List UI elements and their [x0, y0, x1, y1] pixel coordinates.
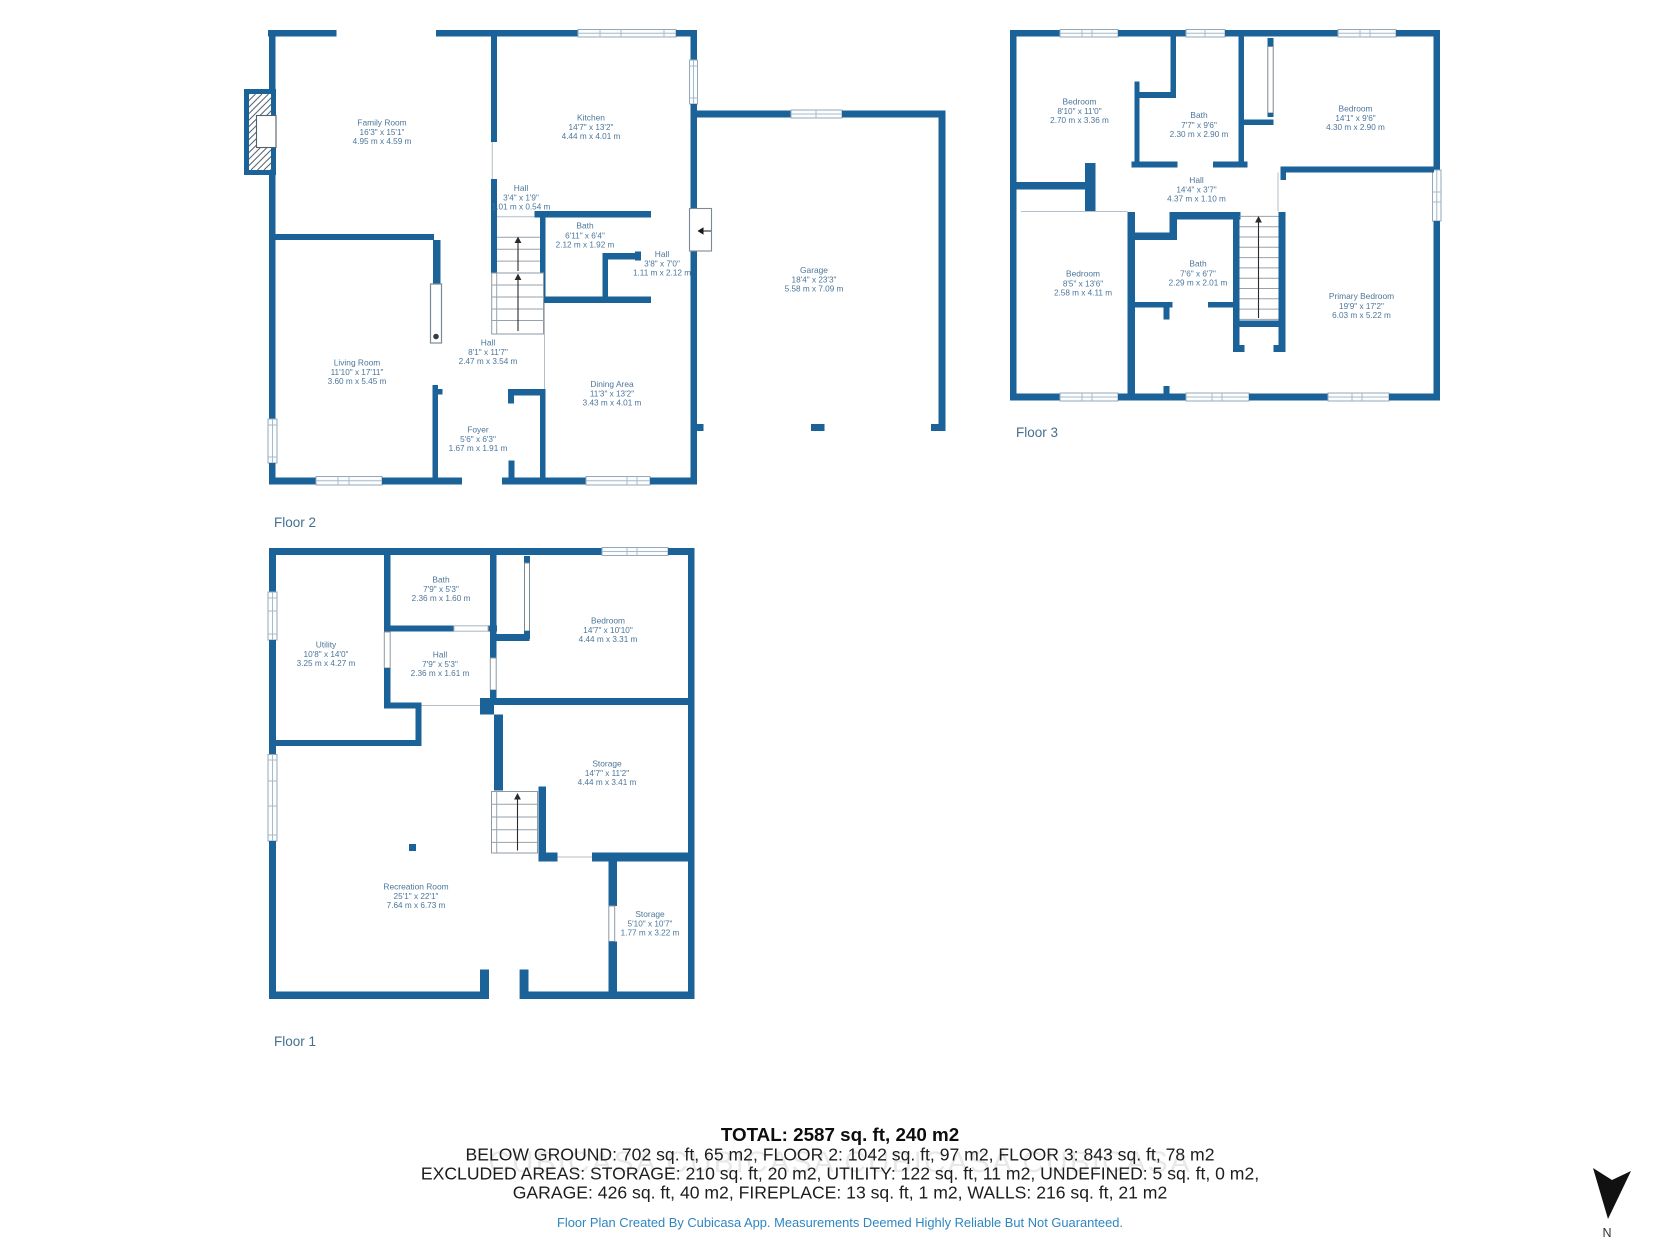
svg-text:Storage: Storage [635, 909, 665, 919]
svg-text:14'1" x 9'6": 14'1" x 9'6" [1335, 114, 1375, 123]
svg-text:Bath: Bath [1190, 110, 1208, 120]
svg-text:Floor 1: Floor 1 [274, 1034, 316, 1049]
svg-text:Foyer: Foyer [467, 424, 489, 434]
svg-text:8'1" x 11'7": 8'1" x 11'7" [468, 348, 508, 357]
svg-text:2.29 m x 2.01 m: 2.29 m x 2.01 m [1169, 279, 1228, 288]
svg-text:Recreation Room: Recreation Room [383, 881, 448, 891]
svg-text:6'11" x 6'4": 6'11" x 6'4" [565, 232, 605, 241]
svg-text:Kitchen: Kitchen [577, 112, 605, 122]
svg-text:2.47 m x 3.54 m: 2.47 m x 3.54 m [459, 357, 518, 366]
svg-text:Hall: Hall [433, 649, 448, 659]
svg-text:4.37 m x 1.10 m: 4.37 m x 1.10 m [1167, 195, 1226, 204]
svg-text:7'9" x 5'3": 7'9" x 5'3" [423, 585, 459, 594]
svg-text:7'7" x 9'6": 7'7" x 9'6" [1181, 121, 1217, 130]
svg-text:Bath: Bath [576, 221, 594, 231]
svg-text:5'10" x 10'7": 5'10" x 10'7" [628, 920, 673, 929]
svg-text:5.58 m x 7.09 m: 5.58 m x 7.09 m [785, 285, 844, 294]
svg-text:3'8" x 7'0": 3'8" x 7'0" [644, 260, 680, 269]
svg-text:4.95 m x 4.59 m: 4.95 m x 4.59 m [353, 137, 412, 146]
svg-text:8'5" x 13'6": 8'5" x 13'6" [1063, 280, 1103, 289]
svg-text:6.03 m x 5.22 m: 6.03 m x 5.22 m [1332, 311, 1391, 320]
svg-text:7'9" x 5'3": 7'9" x 5'3" [422, 660, 458, 669]
svg-text:10'8" x 14'0": 10'8" x 14'0" [304, 650, 349, 659]
svg-text:11'10" x 17'11": 11'10" x 17'11" [331, 368, 384, 377]
svg-text:4.30 m x 2.90 m: 4.30 m x 2.90 m [1326, 123, 1385, 132]
svg-text:EXCLUDED AREAS: STORAGE: 210 s: EXCLUDED AREAS: STORAGE: 210 sq. ft, 20 … [421, 1164, 1259, 1184]
svg-text:Storage: Storage [592, 758, 622, 768]
svg-text:2.12 m x 1.92 m: 2.12 m x 1.92 m [556, 241, 615, 250]
svg-text:7'6" x 6'7": 7'6" x 6'7" [1180, 270, 1216, 279]
svg-text:Bedroom: Bedroom [1063, 96, 1097, 106]
svg-text:2.36 m x 1.61 m: 2.36 m x 1.61 m [411, 669, 470, 678]
svg-text:Garage: Garage [800, 265, 828, 275]
svg-text:4.44 m x 4.01 m: 4.44 m x 4.01 m [562, 132, 621, 141]
svg-text:8'10" x 11'0": 8'10" x 11'0" [1057, 107, 1101, 116]
svg-text:Bedroom: Bedroom [1339, 103, 1373, 113]
svg-text:11'3" x 13'2": 11'3" x 13'2" [590, 390, 634, 399]
svg-text:14'7" x 11'2": 14'7" x 11'2" [585, 769, 629, 778]
svg-text:Utility: Utility [316, 639, 337, 649]
svg-text:Floor Plan Created By Cubicasa: Floor Plan Created By Cubicasa App. Meas… [557, 1215, 1123, 1230]
svg-text:Bedroom: Bedroom [1066, 269, 1100, 279]
svg-text:2.70 m x 3.36 m: 2.70 m x 3.36 m [1050, 116, 1109, 125]
svg-text:Primary Bedroom: Primary Bedroom [1329, 291, 1394, 301]
svg-text:14'7" x 13'2": 14'7" x 13'2" [569, 123, 614, 132]
svg-text:16'3" x 15'1": 16'3" x 15'1" [360, 128, 405, 137]
svg-text:Hall: Hall [514, 183, 529, 193]
svg-text:3.43 m x 4.01 m: 3.43 m x 4.01 m [583, 399, 642, 408]
svg-text:Living Room: Living Room [334, 357, 381, 367]
svg-text:Hall: Hall [655, 249, 670, 259]
svg-text:4.44 m x 3.31 m: 4.44 m x 3.31 m [579, 635, 638, 644]
svg-text:1.67 m x 1.91 m: 1.67 m x 1.91 m [449, 444, 508, 453]
svg-text:Floor 2: Floor 2 [274, 515, 316, 530]
svg-text:25'1" x 22'1": 25'1" x 22'1" [394, 892, 439, 901]
svg-text:Bath: Bath [1189, 259, 1207, 269]
svg-text:3.25 m x 4.27 m: 3.25 m x 4.27 m [297, 659, 356, 668]
svg-text:2.30 m x 2.90 m: 2.30 m x 2.90 m [1170, 130, 1229, 139]
svg-text:2.58 m x 4.11 m: 2.58 m x 4.11 m [1054, 289, 1112, 298]
svg-text:1.01 m x 0.54 m: 1.01 m x 0.54 m [492, 203, 551, 212]
svg-text:1.11 m x 2.12 m: 1.11 m x 2.12 m [633, 269, 691, 278]
svg-text:N: N [1602, 1226, 1611, 1240]
svg-text:14'4" x 3'7": 14'4" x 3'7" [1176, 186, 1216, 195]
svg-text:Floor 3: Floor 3 [1016, 425, 1058, 440]
svg-text:Bedroom: Bedroom [591, 615, 625, 625]
svg-text:TOTAL: 2587 sq. ft, 240 m2: TOTAL: 2587 sq. ft, 240 m2 [721, 1124, 959, 1145]
svg-text:Hall: Hall [1189, 175, 1204, 185]
svg-text:Bath: Bath [432, 574, 450, 584]
svg-text:2.36 m x 1.60 m: 2.36 m x 1.60 m [412, 594, 471, 603]
svg-text:18'4" x 23'3": 18'4" x 23'3" [792, 276, 837, 285]
svg-text:14'7" x 10'10": 14'7" x 10'10" [583, 626, 633, 635]
svg-text:7.64 m x 6.73 m: 7.64 m x 6.73 m [387, 901, 446, 910]
svg-text:Dining Area: Dining Area [590, 379, 634, 389]
svg-text:3'4" x 1'9": 3'4" x 1'9" [503, 194, 539, 203]
svg-text:19'9" x 17'2": 19'9" x 17'2" [1339, 302, 1384, 311]
svg-text:5'6" x 6'3": 5'6" x 6'3" [460, 435, 496, 444]
svg-text:3.60 m x 5.45 m: 3.60 m x 5.45 m [328, 377, 387, 386]
svg-text:Family Room: Family Room [357, 117, 406, 127]
svg-text:1.77 m x 3.22 m: 1.77 m x 3.22 m [621, 929, 680, 938]
svg-text:BELOW GROUND: 702 sq. ft, 65 m: BELOW GROUND: 702 sq. ft, 65 m2, FLOOR 2… [465, 1145, 1214, 1165]
svg-text:4.44 m x 3.41 m: 4.44 m x 3.41 m [578, 778, 637, 787]
svg-text:Hall: Hall [481, 337, 496, 347]
svg-text:GARAGE: 426 sq. ft, 40 m2, FIR: GARAGE: 426 sq. ft, 40 m2, FIREPLACE: 13… [513, 1183, 1168, 1203]
